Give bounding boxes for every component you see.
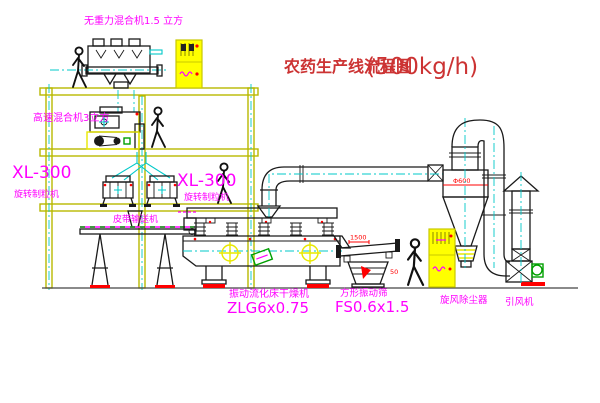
label-screen-model: FS0.6x1.5 xyxy=(335,298,409,316)
screen-side-dim: 50 xyxy=(390,268,398,276)
dryer-crosshair-right xyxy=(299,242,321,264)
diagram-title-capacity: (500kg/h) xyxy=(366,54,478,80)
belt-conveyor xyxy=(80,227,195,288)
label-cyclone: 旋风除尘器 xyxy=(440,294,488,306)
induced-draft-fan xyxy=(504,172,545,286)
label-granulator-left-name: 旋转制粒机 xyxy=(14,188,59,200)
granulator-right xyxy=(144,176,180,207)
label-high-speed-mixer: 高速混合机3立方 xyxy=(33,111,109,124)
control-cabinet-upper xyxy=(176,40,202,88)
gravity-mixer xyxy=(50,39,168,88)
control-cabinet-lower xyxy=(429,229,455,287)
drawing-canvas: Φ600 1500 50 xyxy=(0,0,600,403)
label-granulator-right-name: 旋转制粒机 xyxy=(184,191,229,203)
screen-length-dim: 1500 xyxy=(350,234,367,242)
worker-ground-floor xyxy=(408,239,423,285)
vibrating-screen: 1500 50 xyxy=(334,234,400,288)
dryer-springs xyxy=(194,223,334,235)
dryer-crosshair-left xyxy=(219,242,241,264)
cad-flow-diagram: Φ600 1500 50 xyxy=(0,0,600,403)
label-granulator-right-model: XL-300 xyxy=(177,171,236,191)
label-belt-conveyor: 皮带输送机 xyxy=(113,213,158,225)
worker-top-floor xyxy=(73,47,86,87)
cyclone-diameter-dim: Φ600 xyxy=(453,177,471,185)
label-dryer-model: ZLG6x0.75 xyxy=(227,299,309,317)
feed-line-dashes xyxy=(118,90,134,112)
granulator-left xyxy=(100,176,136,207)
worker-second-floor xyxy=(152,107,165,147)
label-fan: 引风机 xyxy=(505,296,534,308)
exhaust-duct xyxy=(258,165,443,217)
label-gravity-mixer: 无重力混合机1.5 立方 xyxy=(84,14,183,27)
fluid-bed-dryer xyxy=(178,208,342,288)
label-granulator-left-model: XL-300 xyxy=(12,163,71,183)
